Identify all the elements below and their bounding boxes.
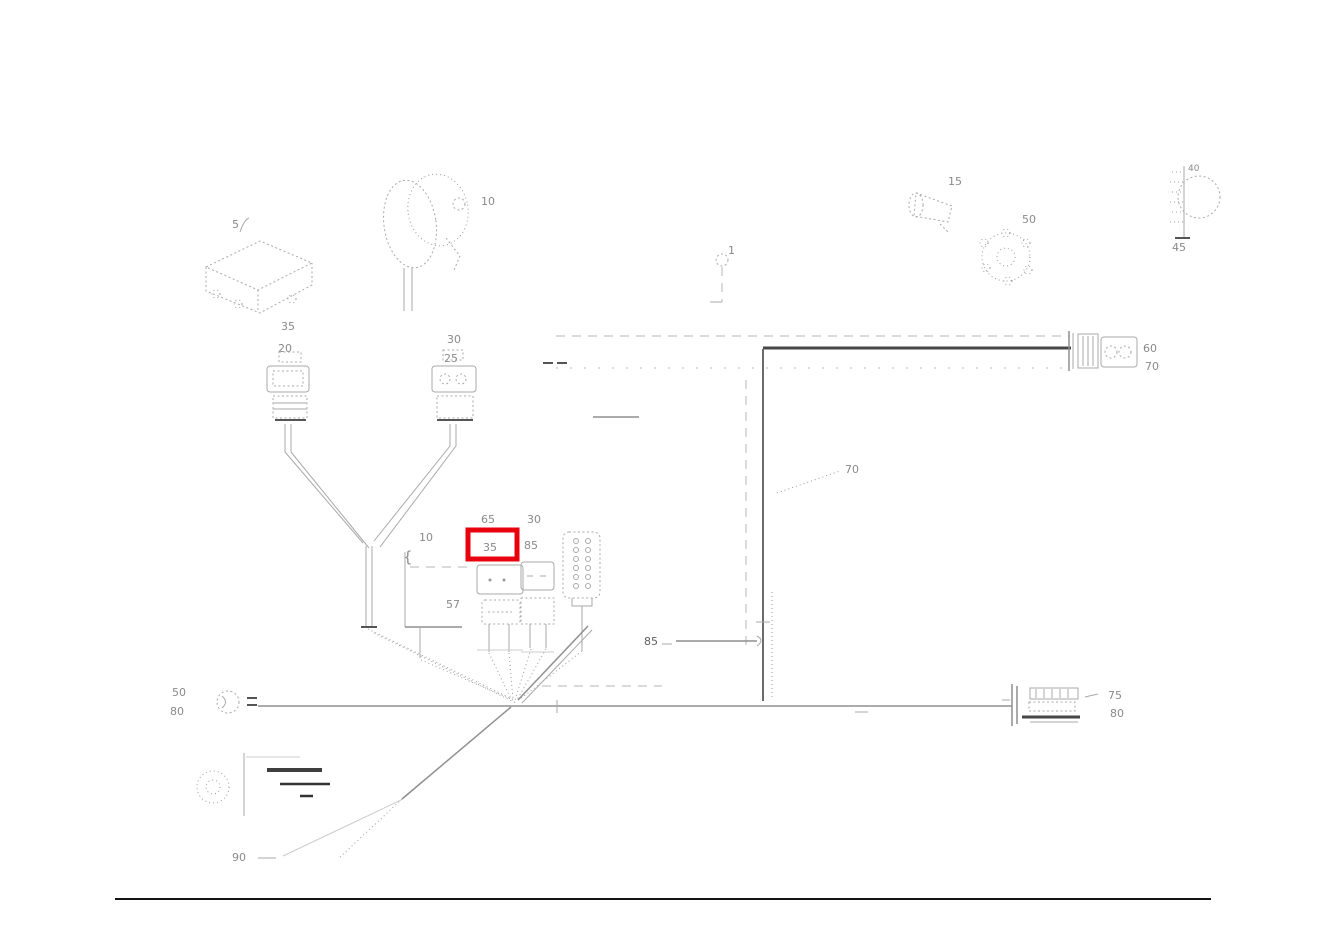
callout-relay-top: 30 (527, 513, 541, 526)
callout-conn-br-top: 75 (1108, 689, 1122, 702)
bracket-group-sketch: 10 { 57 (403, 531, 468, 658)
connector-top-right-sketch: 60 70 (1069, 331, 1159, 373)
bulb-part-sketch: 40 45 (1170, 164, 1220, 254)
callout-conn-b-bottom: 25 (444, 352, 458, 365)
leader-lines: 70 85 (644, 463, 859, 648)
highlight-group: 65 35 30 85 (468, 513, 541, 559)
callout-bulb-bottom: 45 (1172, 241, 1186, 254)
legend-block-sketch: 90 (197, 753, 330, 864)
callout-bracket-part: 57 (446, 598, 460, 611)
harness-diagram-canvas: 5 10 35 20 30 25 (0, 0, 1326, 937)
stub-part-sketch: 1 (710, 244, 735, 302)
connector-b-sketch: 30 25 (432, 333, 476, 446)
switch-part-sketch: 50 (980, 213, 1036, 285)
callout-conn-a-top: 35 (281, 320, 295, 333)
callout-ecu: 5 (232, 218, 239, 231)
parts-diagram-page: 5 10 35 20 30 25 (0, 0, 1326, 937)
callout-grommet-top: 50 (172, 686, 186, 699)
callout-horn: 10 (481, 195, 495, 208)
trunk-lines (543, 336, 1071, 701)
callout-legend-leader: 90 (232, 851, 246, 864)
callout-grommet-bottom: 80 (170, 705, 184, 718)
relay-1-sketch (477, 565, 523, 652)
cone-part-sketch: 15 (909, 175, 962, 232)
connector-a-sketch: 35 20 (267, 320, 309, 452)
callout-relay-bottom: 85 (524, 539, 538, 552)
connector-bottom-right-sketch: 75 80 (1002, 684, 1124, 726)
callout-cone: 15 (948, 175, 962, 188)
callout-switch: 50 (1022, 213, 1036, 226)
callout-trunk-leader: 70 (845, 463, 859, 476)
callout-conn-b-top: 30 (447, 333, 461, 346)
brace-glyph: { (403, 548, 413, 566)
grommet-sketch: 50 80 (170, 686, 257, 718)
callout-bulb-top: 40 (1188, 164, 1200, 174)
callout-bracket-num: 10 (419, 531, 433, 544)
relay-2-sketch (521, 562, 554, 652)
callout-highlight: 35 (483, 541, 497, 554)
ecu-module-sketch: 5 (206, 218, 312, 313)
callout-above-highlight: 65 (481, 513, 495, 526)
junction-fan-lines (283, 626, 662, 859)
callout-conn-right-top: 60 (1143, 342, 1157, 355)
callout-conn-a-bottom: 20 (278, 342, 292, 355)
callout-conn-br-bottom: 80 (1110, 707, 1124, 720)
callout-conn-right-bottom: 70 (1145, 360, 1159, 373)
callout-stub: 1 (728, 244, 735, 257)
main-harness-line (258, 700, 1012, 713)
callout-mid-leader: 85 (644, 635, 658, 648)
horn-sketch: 10 (378, 169, 495, 311)
